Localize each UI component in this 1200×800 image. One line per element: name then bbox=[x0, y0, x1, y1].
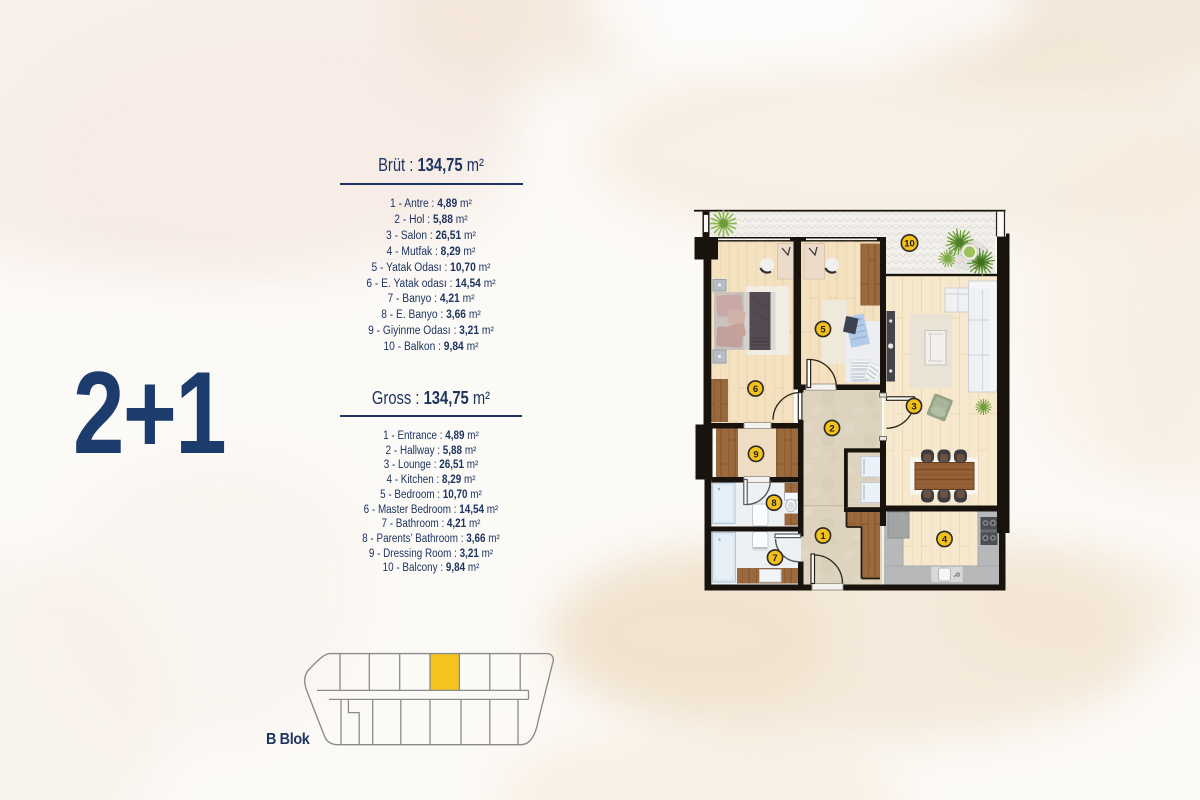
svg-text:5: 5 bbox=[820, 325, 826, 336]
svg-text:8: 8 bbox=[771, 498, 776, 509]
svg-text:7: 7 bbox=[772, 553, 777, 564]
svg-text:9: 9 bbox=[753, 449, 758, 460]
svg-text:6: 6 bbox=[753, 384, 758, 395]
svg-text:1: 1 bbox=[820, 531, 826, 542]
svg-text:3: 3 bbox=[911, 402, 916, 413]
svg-text:10: 10 bbox=[904, 239, 915, 250]
svg-text:4: 4 bbox=[942, 535, 948, 546]
svg-text:2: 2 bbox=[829, 424, 834, 435]
